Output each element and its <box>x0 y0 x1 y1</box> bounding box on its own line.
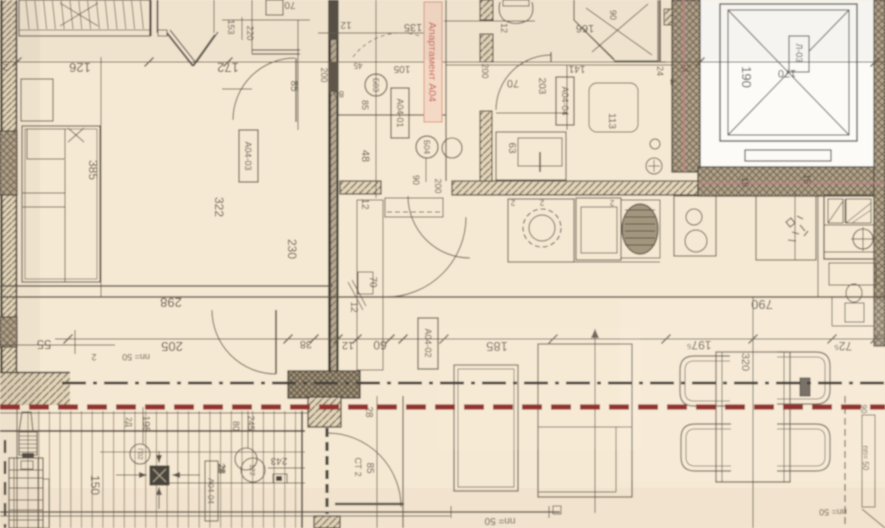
svg-text:298: 298 <box>160 295 182 310</box>
svg-text:70: 70 <box>507 77 519 89</box>
svg-text:245: 245 <box>246 415 256 430</box>
svg-text:25: 25 <box>681 63 691 73</box>
svg-text:12: 12 <box>359 198 370 210</box>
svg-text:205: 205 <box>161 339 183 354</box>
svg-text:90: 90 <box>411 175 421 185</box>
svg-text:Б04: Б04 <box>422 140 431 155</box>
svg-text:24: 24 <box>655 66 665 76</box>
svg-text:230: 230 <box>285 239 299 259</box>
svg-text:63: 63 <box>506 142 517 154</box>
svg-text:А04-04: А04-04 <box>560 86 570 115</box>
svg-text:80: 80 <box>231 421 241 431</box>
svg-text:38: 38 <box>300 338 312 350</box>
svg-text:113: 113 <box>606 113 617 129</box>
svg-text:122: 122 <box>248 464 255 476</box>
svg-text:4: 4 <box>669 77 674 86</box>
svg-text:200: 200 <box>480 63 490 78</box>
svg-text:190: 190 <box>739 66 754 88</box>
svg-text:170: 170 <box>778 67 796 79</box>
svg-text:141: 141 <box>568 63 585 74</box>
svg-text:Г02: Г02 <box>136 448 143 460</box>
svg-text:А04-01: А04-01 <box>395 98 405 127</box>
svg-text:48: 48 <box>359 150 371 162</box>
svg-text:СТ 2: СТ 2 <box>353 457 363 476</box>
svg-text:45: 45 <box>353 61 362 70</box>
svg-text:12: 12 <box>348 301 359 313</box>
svg-text:12: 12 <box>342 339 354 351</box>
svg-text:2: 2 <box>91 352 96 362</box>
svg-text:Б03: Б03 <box>371 78 380 93</box>
svg-text:126: 126 <box>69 60 91 75</box>
svg-text:28: 28 <box>217 464 227 474</box>
svg-text:2: 2 <box>510 198 515 207</box>
svg-text:85: 85 <box>364 462 375 474</box>
svg-text:А04-03: А04-03 <box>243 141 253 170</box>
svg-text:385: 385 <box>86 160 100 180</box>
svg-text:80: 80 <box>334 89 344 99</box>
svg-text:322: 322 <box>212 197 226 217</box>
svg-text:А04-02: А04-02 <box>423 328 433 357</box>
svg-text:172: 172 <box>217 60 239 75</box>
svg-text:15: 15 <box>740 177 750 187</box>
svg-text:105: 105 <box>393 63 410 74</box>
svg-text:243: 243 <box>270 455 287 466</box>
svg-text:203: 203 <box>536 78 547 95</box>
svg-text:200: 200 <box>433 178 443 193</box>
svg-text:2: 2 <box>539 198 544 207</box>
svg-text:nn= 50: nn= 50 <box>122 352 150 362</box>
svg-text:85: 85 <box>288 80 299 92</box>
svg-text:200: 200 <box>319 67 329 82</box>
svg-text:85: 85 <box>360 100 370 110</box>
svg-text:2Д: 2Д <box>124 417 133 427</box>
svg-text:2: 2 <box>609 198 614 207</box>
svg-text:60: 60 <box>373 338 387 352</box>
svg-text:70: 70 <box>367 276 378 288</box>
svg-text:195: 195 <box>140 416 151 433</box>
svg-text:15: 15 <box>802 174 812 184</box>
